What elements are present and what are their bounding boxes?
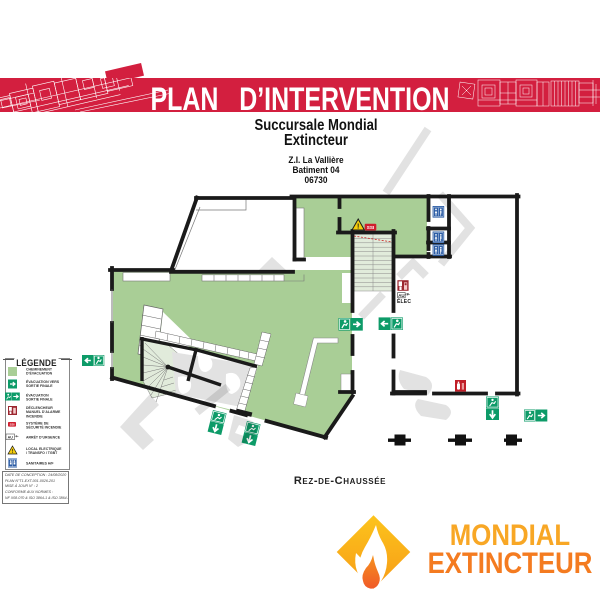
svg-text:INCENDIE: INCENDIE [26,414,43,418]
svg-text:D’ÉVACUATION: D’ÉVACUATION [26,371,53,376]
svg-text:SSI: SSI [10,423,15,427]
svg-text:AU: AU [8,435,14,439]
svg-text:SÉCURITÉ INCENDIE: SÉCURITÉ INCENDIE [26,425,62,430]
svg-text:ARRÊT D’URGENCE: ARRÊT D’URGENCE [26,435,61,440]
svg-text:/ TRANSFO / TGBT: / TRANSFO / TGBT [26,451,58,455]
svg-text:SORTIE FINALE: SORTIE FINALE [26,384,53,388]
svg-text:SANITAIRES H/F: SANITAIRES H/F [26,462,54,466]
svg-text:SORTIE FINALE: SORTIE FINALE [26,398,53,402]
